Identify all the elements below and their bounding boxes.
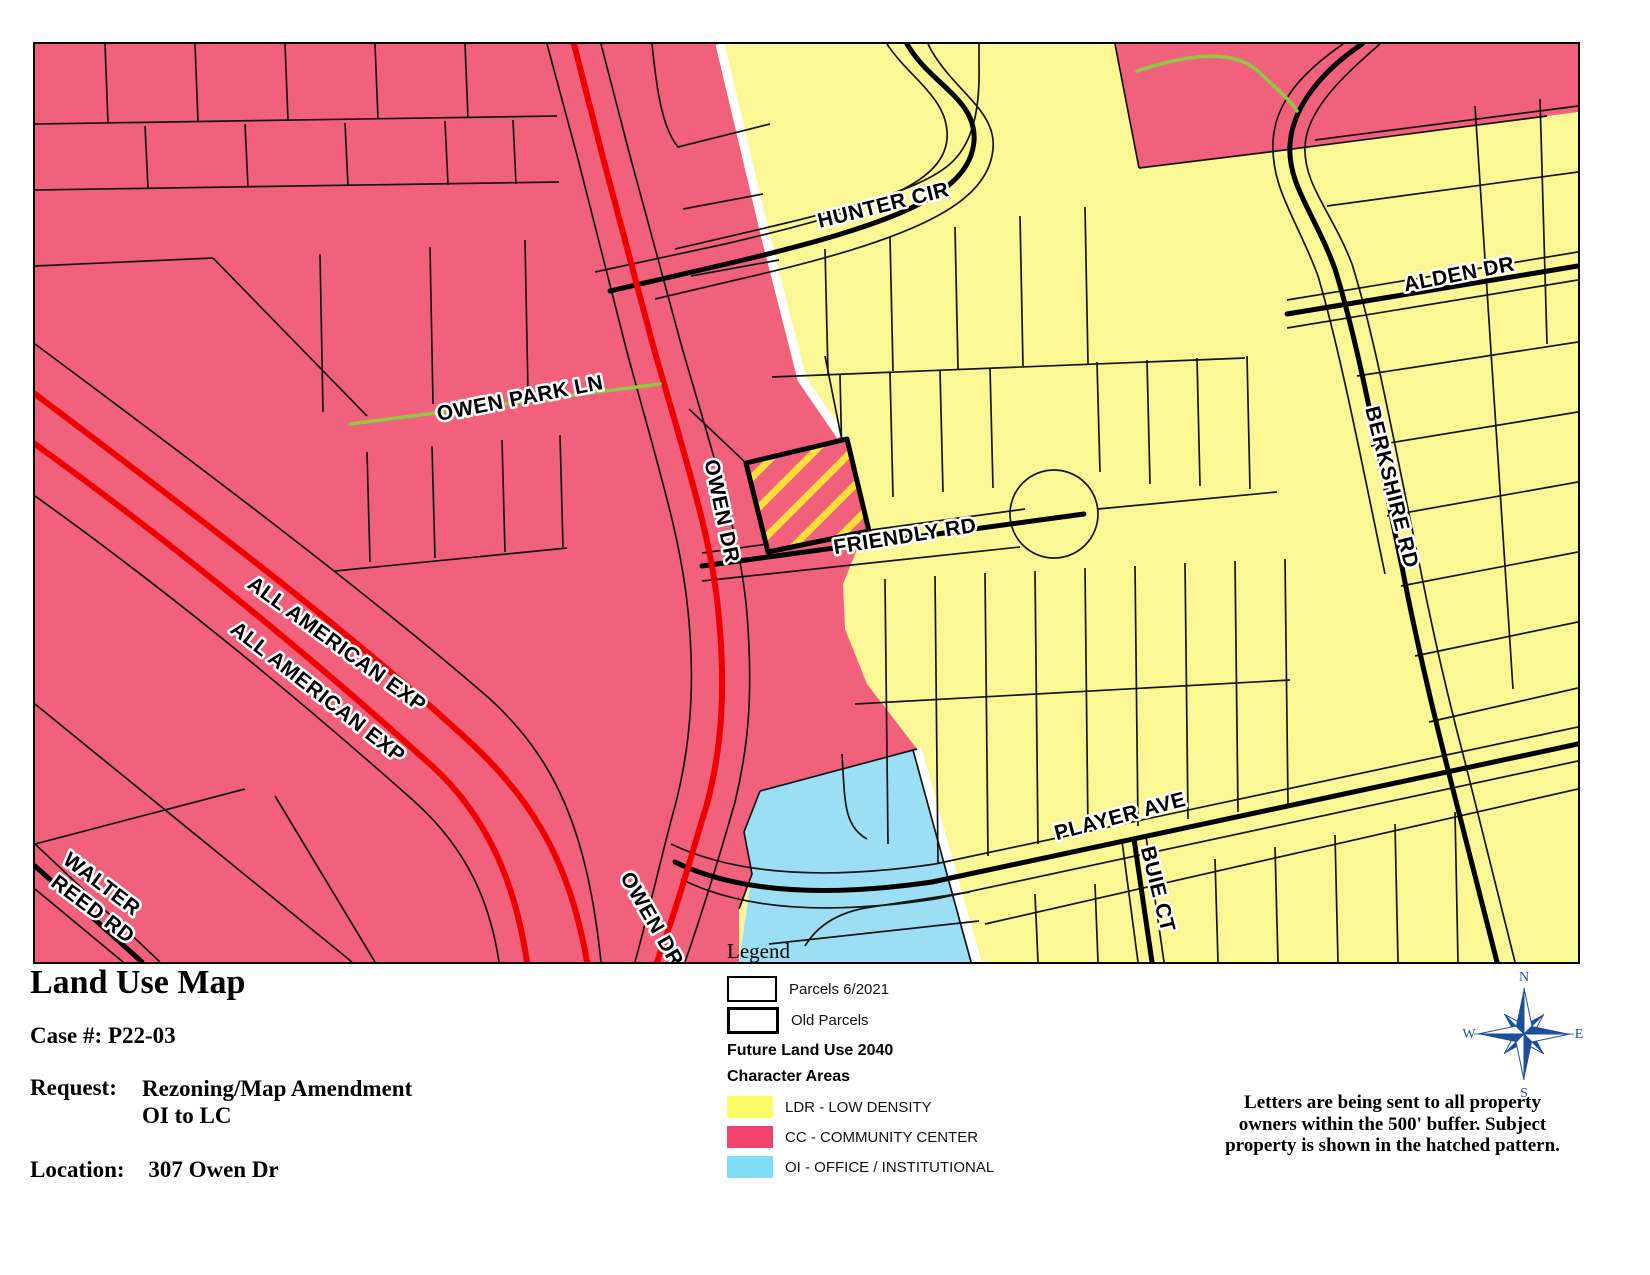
old-parcels-swatch [727, 1007, 779, 1034]
parcels-swatch [727, 976, 777, 1002]
buffer-note: Letters are being sent to all property o… [1200, 1092, 1585, 1157]
legend-item-oi: OI - OFFICE / INSTITUTIONAL [727, 1156, 1057, 1178]
future-land-use-heading: Future Land Use 2040 [727, 1042, 1057, 1060]
request-label: Request: [30, 1075, 142, 1129]
land-use-map-page: HUNTER CIR OWEN PARK LN OWEN DR FRIENDLY… [0, 0, 1650, 1275]
request-value-line2: OI to LC [142, 1102, 412, 1129]
character-areas-heading: Character Areas [727, 1068, 1057, 1086]
page-title: Land Use Map [30, 965, 590, 1001]
ldr-swatch [727, 1096, 773, 1118]
compass-north-label: N [1519, 970, 1529, 985]
compass-west-label: W [1462, 1027, 1476, 1042]
note-line2: owners within the 500' buffer. Subject [1200, 1114, 1585, 1136]
legend-item-label: OI - OFFICE / INSTITUTIONAL [785, 1159, 994, 1176]
legend-heading: Legend [727, 940, 1057, 962]
map-frame: HUNTER CIR OWEN PARK LN OWEN DR FRIENDLY… [33, 42, 1580, 964]
legend-item-label: Parcels 6/2021 [789, 981, 889, 998]
oi-swatch [727, 1156, 773, 1178]
legend-item-ldr: LDR - LOW DENSITY [727, 1096, 1057, 1118]
compass-east-label: E [1575, 1027, 1584, 1042]
legend-item-parcels: Parcels 6/2021 [727, 977, 1057, 1001]
case-value: P22-03 [108, 1023, 176, 1048]
legend-item-old-parcels: Old Parcels [727, 1008, 1057, 1032]
legend-item-label: LDR - LOW DENSITY [785, 1099, 932, 1116]
legend-item-cc: CC - COMMUNITY CENTER [727, 1126, 1057, 1148]
case-number-line: Case #: P22-03 [30, 1023, 590, 1049]
location-label: Location: [30, 1157, 125, 1182]
location-value: 307 Owen Dr [148, 1157, 278, 1182]
note-line3: property is shown in the hatched pattern… [1200, 1135, 1585, 1157]
case-label: Case #: [30, 1023, 102, 1048]
map-canvas: HUNTER CIR OWEN PARK LN OWEN DR FRIENDLY… [35, 44, 1578, 962]
legend-item-label: CC - COMMUNITY CENTER [785, 1129, 978, 1146]
title-block: Land Use Map Case #: P22-03 Request: Rez… [30, 965, 590, 1183]
request-value: Rezoning/Map Amendment OI to LC [142, 1075, 412, 1129]
compass-rose: N S E W [1462, 966, 1586, 1102]
request-value-line1: Rezoning/Map Amendment [142, 1075, 412, 1102]
legend-panel: Legend Parcels 6/2021 Old Parcels Future… [727, 940, 1057, 1178]
cc-swatch [727, 1126, 773, 1148]
request-line: Request: Rezoning/Map Amendment OI to LC [30, 1075, 590, 1129]
location-line: Location: 307 Owen Dr [30, 1157, 590, 1183]
legend-item-label: Old Parcels [791, 1012, 869, 1029]
note-line1: Letters are being sent to all property [1200, 1092, 1585, 1114]
